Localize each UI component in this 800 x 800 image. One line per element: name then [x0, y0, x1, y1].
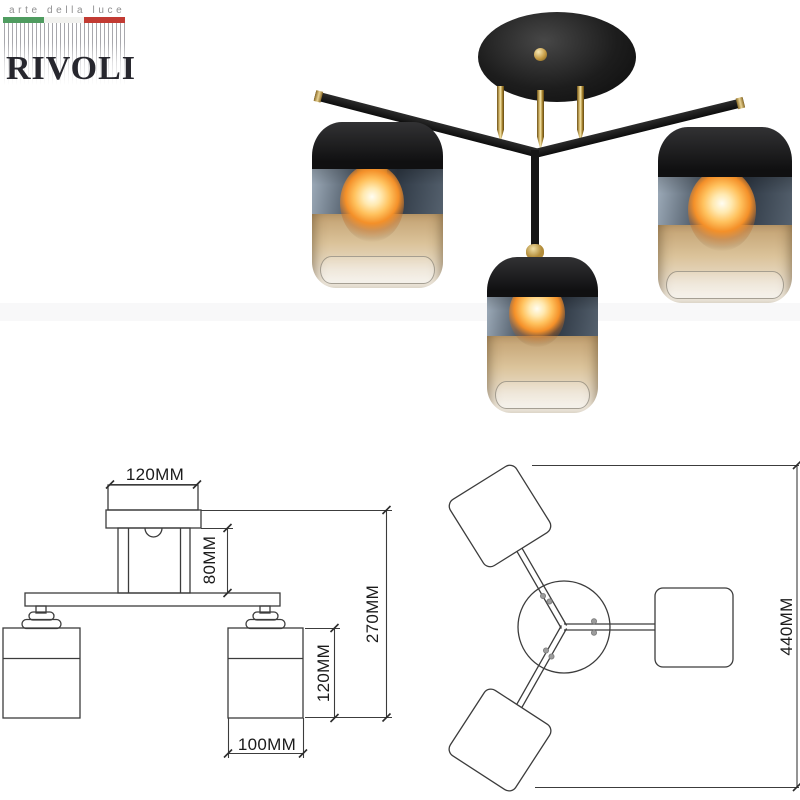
screw-dot	[591, 619, 596, 624]
photo-background-band	[0, 303, 800, 321]
dim-label-total-height: 270MM	[363, 585, 382, 643]
gold-rod	[577, 86, 584, 142]
glass-shade-left	[312, 122, 443, 288]
glass-shade-center	[487, 257, 598, 413]
dim-label-canopy-width: 120MM	[126, 465, 184, 484]
dim-label-overall-diameter: 440MM	[777, 597, 796, 655]
arm-gold-cap	[314, 90, 324, 102]
dimension-drawing-top-view: 440MM	[400, 440, 800, 800]
shade-outline-right	[228, 628, 303, 718]
dim-label-shade-height: 120MM	[314, 644, 333, 702]
shade-square-bottom-left	[446, 686, 554, 794]
black-cap-band	[658, 127, 792, 177]
screw-dot	[549, 654, 554, 659]
glass-bottom-rim	[495, 381, 590, 409]
canopy-cup-outline	[108, 485, 198, 510]
screw-dot	[540, 593, 545, 598]
product-photo	[0, 0, 800, 440]
screw-dot	[547, 599, 552, 604]
glass-bottom-rim	[666, 271, 784, 299]
glowing-bulb	[688, 169, 756, 251]
arm-bar-outline	[25, 593, 280, 606]
canopy-gold-ball	[534, 48, 547, 61]
glowing-bulb	[340, 164, 404, 242]
product-card-page: { "brand": { "tagline": "arte della luce…	[0, 0, 800, 800]
black-cap-band	[487, 257, 598, 297]
shade-outline-left	[3, 628, 80, 718]
screw-dot	[591, 630, 596, 635]
top-view-svg: 440MM	[400, 440, 800, 800]
canopy-circle-outline	[518, 581, 610, 673]
dimension-drawing-front-view: 120MM 80MM 270MM 120MM 100MM	[0, 440, 400, 800]
shade-square-right	[655, 588, 733, 667]
gold-rod	[537, 90, 544, 150]
screw-dot	[543, 648, 548, 653]
dim-label-shade-width: 100MM	[238, 735, 296, 754]
center-stem	[531, 150, 539, 250]
gold-rod	[497, 86, 504, 142]
canopy-plate-outline	[106, 510, 201, 528]
shade-square-top-left	[446, 462, 553, 569]
holder-base-outline	[246, 620, 285, 629]
black-cap-band	[312, 122, 443, 169]
dim-label-stem-height: 80MM	[200, 536, 219, 584]
front-view-svg: 120MM 80MM 270MM 120MM 100MM	[0, 440, 400, 800]
arm-gold-cap	[736, 97, 745, 109]
glass-shade-right	[658, 127, 792, 303]
holder-base-outline	[22, 620, 61, 629]
mount-dome-outline	[145, 528, 162, 537]
glass-bottom-rim	[320, 256, 435, 284]
